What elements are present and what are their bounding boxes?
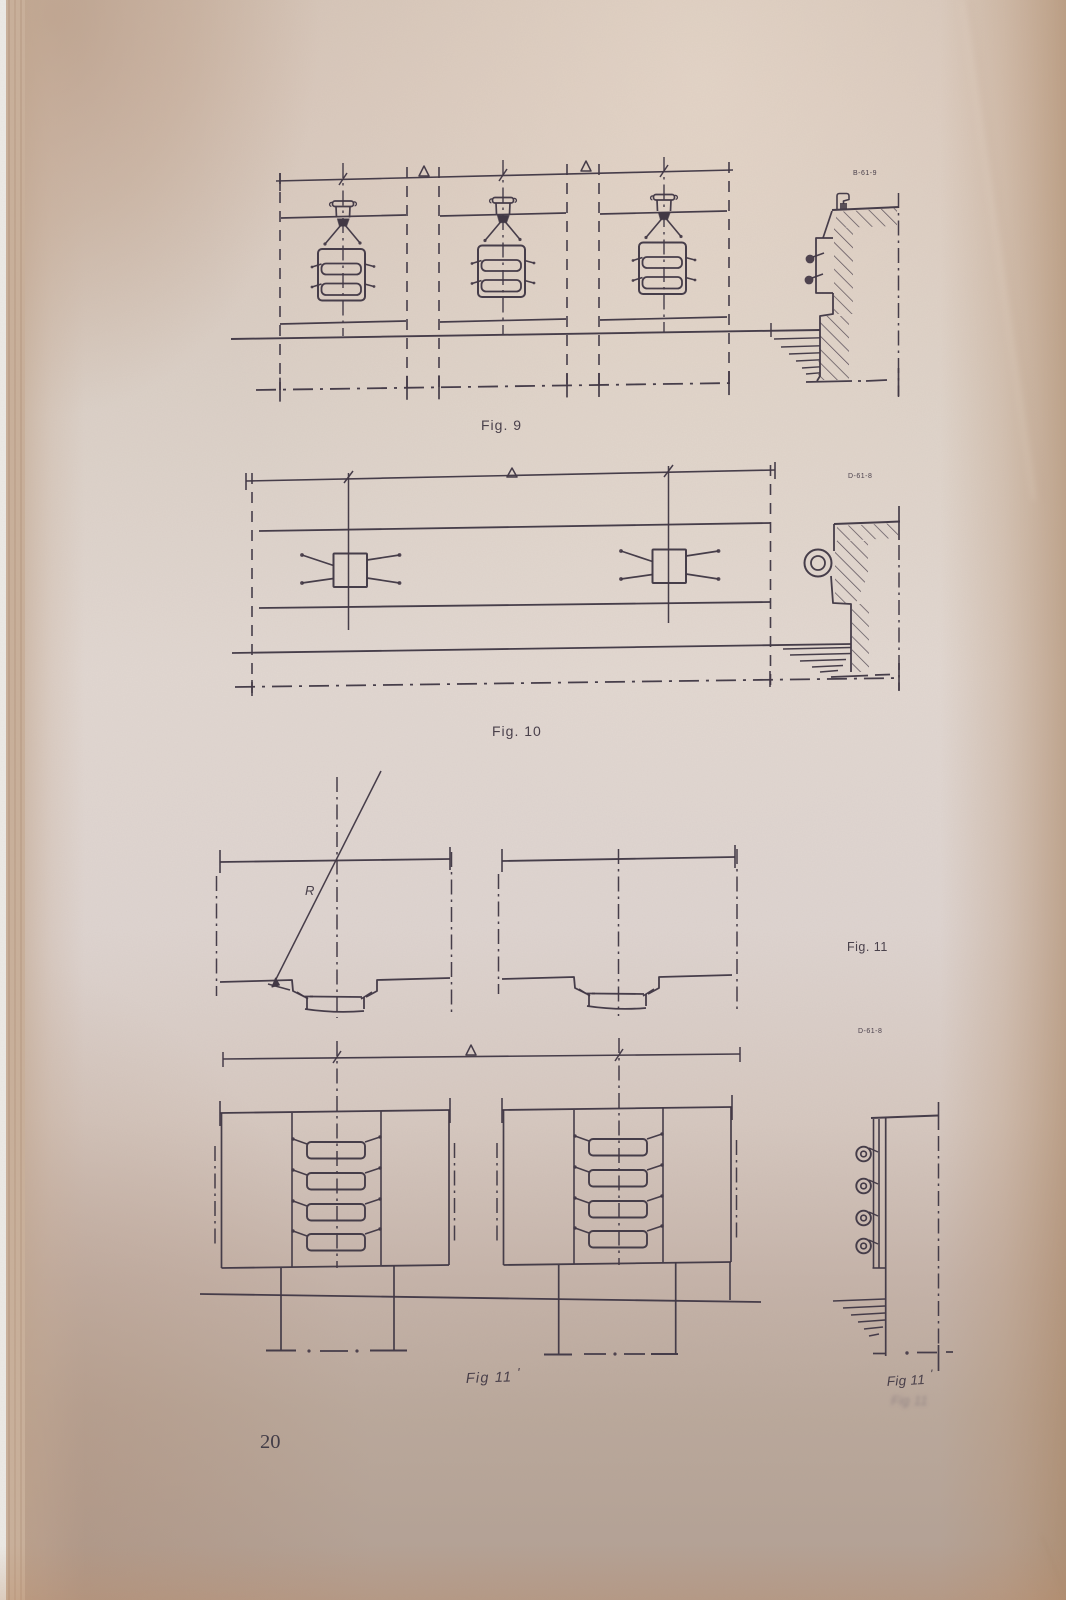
svg-text:B-61-9: B-61-9 bbox=[853, 170, 877, 177]
svg-text:Fig. 11: Fig. 11 bbox=[847, 940, 888, 954]
svg-text:Fig 11: Fig 11 bbox=[466, 1369, 513, 1387]
svg-text:D-61-8: D-61-8 bbox=[858, 1028, 882, 1035]
svg-text:Fig. 9: Fig. 9 bbox=[481, 417, 522, 433]
svg-text:R: R bbox=[305, 883, 314, 898]
svg-text:Fig 11: Fig 11 bbox=[886, 1372, 925, 1389]
svg-text:Fig. 10: Fig. 10 bbox=[492, 723, 542, 739]
svg-text:20: 20 bbox=[260, 1431, 281, 1453]
svg-text:Fig 11: Fig 11 bbox=[891, 1393, 928, 1408]
svg-text:D-61-8: D-61-8 bbox=[848, 473, 872, 480]
